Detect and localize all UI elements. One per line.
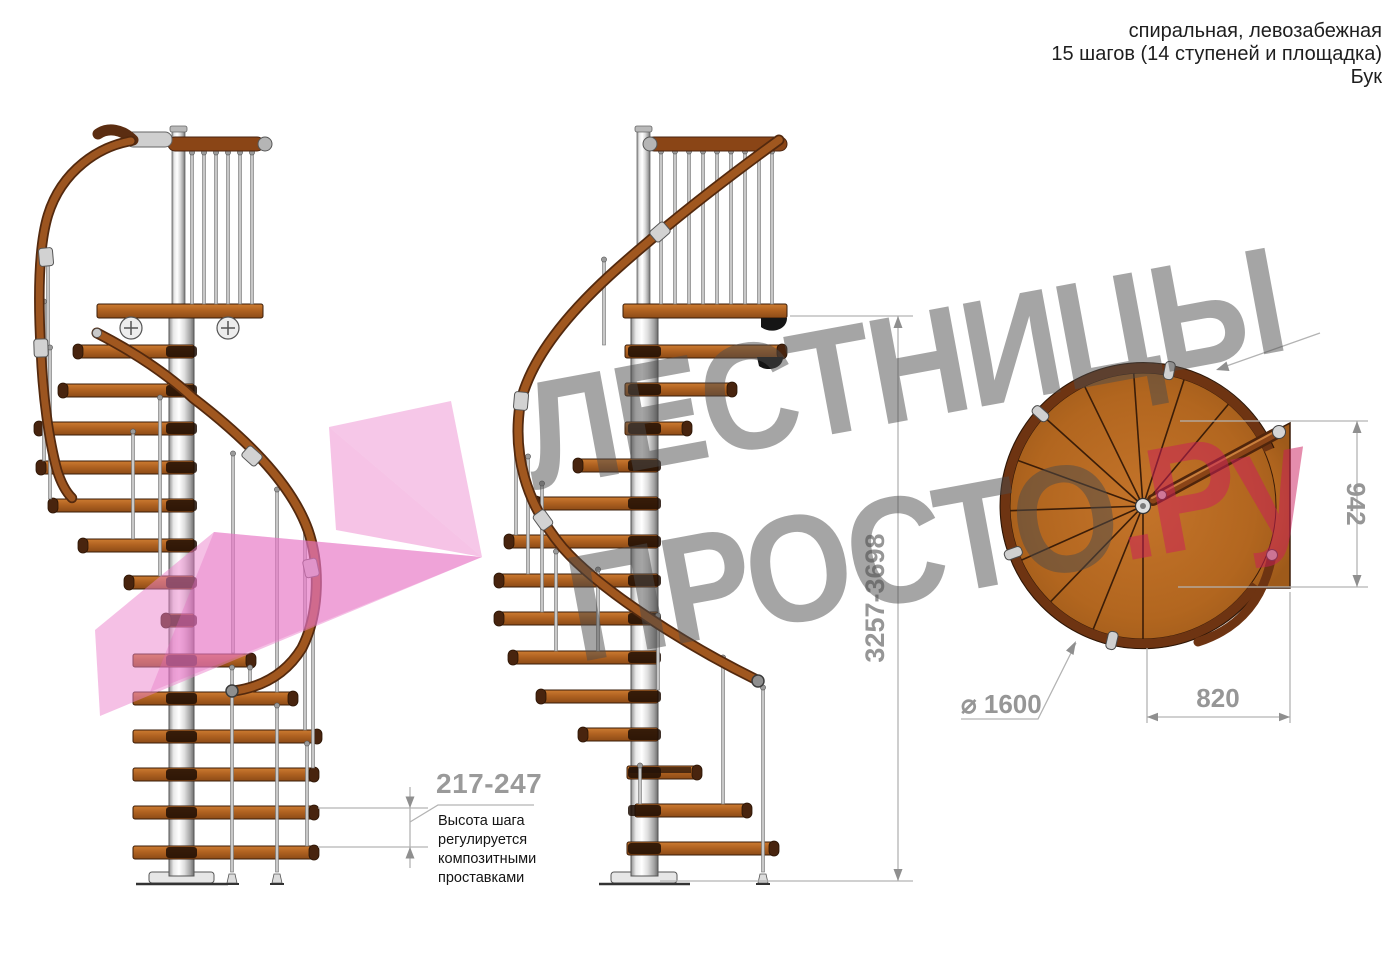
railing-post <box>172 128 185 310</box>
plan-leader-line <box>1218 333 1320 369</box>
title-steps-line: 15 шагов (14 ступеней и площадка) <box>1051 43 1382 66</box>
technical-drawing-page: 3257-3698 942 820 ⌀ 1600 ЛЕСТНИЦЫПРОСТО.… <box>0 0 1400 953</box>
platform-bracket <box>761 318 787 331</box>
rail-sleeve <box>34 339 49 357</box>
dim-total-height-value: 3257-3698 <box>860 533 890 662</box>
dim-step-height-value: 217-247 <box>436 768 542 800</box>
rail-end-cap <box>752 675 764 687</box>
dim-landing-width-value: 942 <box>1341 482 1371 525</box>
plan-view <box>1000 361 1290 651</box>
spiral-staircase-drawing: 3257-3698 942 820 ⌀ 1600 <box>0 0 1400 953</box>
title-material-line: Бук <box>1051 66 1382 89</box>
landing-platform <box>623 304 787 318</box>
dim-diameter-value: ⌀ 1600 <box>961 689 1042 719</box>
dim-landing-depth-value: 820 <box>1196 683 1239 713</box>
stair-front-view <box>34 126 322 884</box>
rail-end-cap <box>226 685 238 697</box>
dim-step-height-note: Высота шага регулируется композитными пр… <box>438 812 588 889</box>
guardrail-top <box>168 137 264 151</box>
rail-sleeve <box>38 247 54 266</box>
tube-end-cap <box>1273 426 1286 439</box>
rail-end-ball <box>643 137 657 151</box>
step-bracket <box>757 357 783 369</box>
railing-post <box>637 128 650 310</box>
landing-platform <box>97 304 263 318</box>
rail-end-ball <box>258 137 272 151</box>
title-type-line: спиральная, левозабежная <box>1051 20 1382 43</box>
rail-sleeve <box>513 391 529 410</box>
title-block: спиральная, левозабежная 15 шагов (14 ст… <box>1051 20 1382 89</box>
